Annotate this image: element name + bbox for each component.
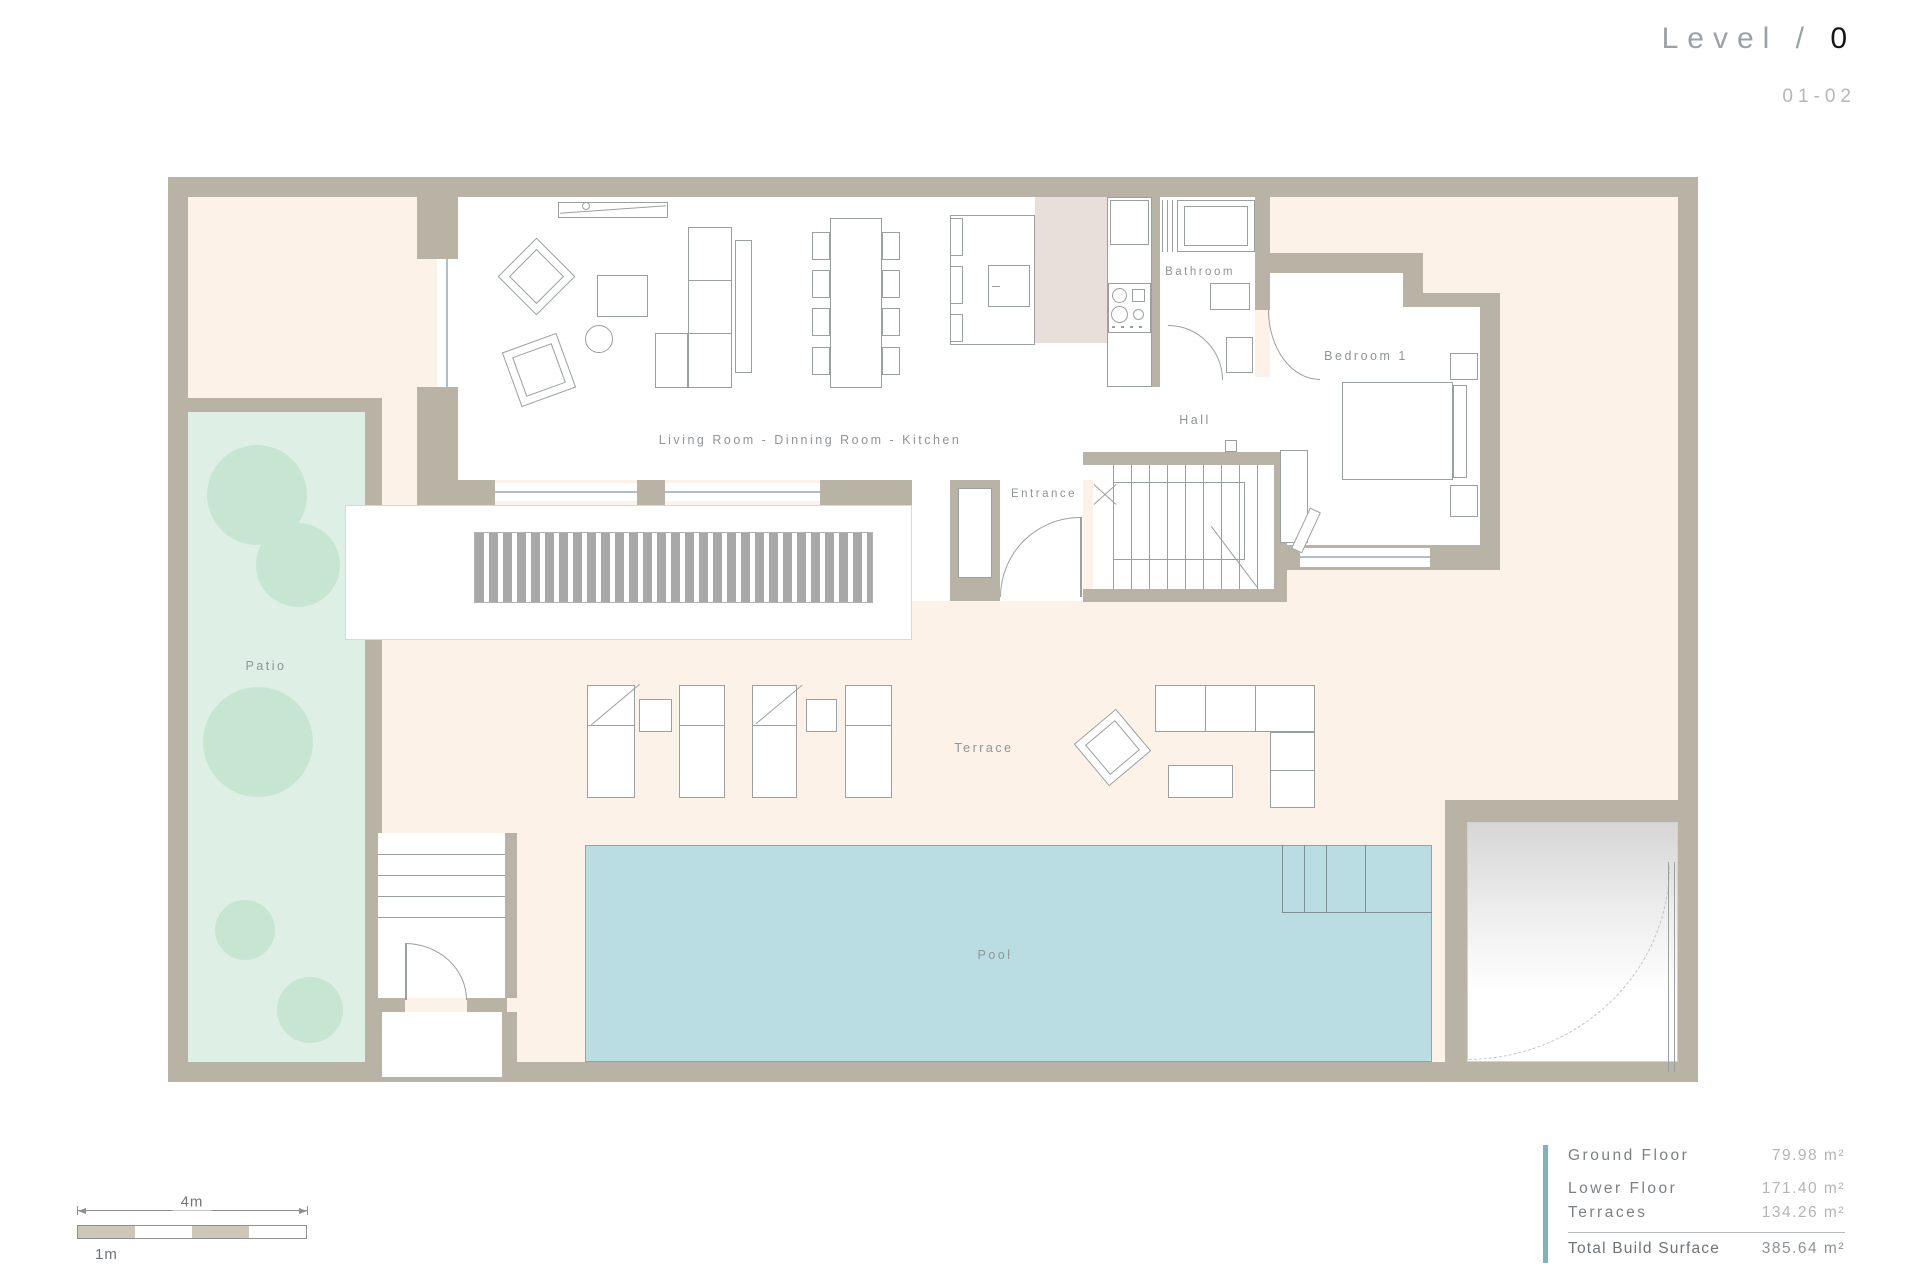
sheet-title: Level / 0 [1662,22,1856,56]
bed-headboard [1453,385,1467,478]
cooktop-burner [1112,288,1127,303]
outdoor-sofa-line [1255,685,1256,732]
pool-step [1326,845,1327,912]
sofa-chaise [655,333,688,388]
sheet-title-level-number: 0 [1830,22,1856,55]
area-table-divider [1568,1232,1845,1233]
pool-step [1365,845,1366,912]
sheet-number: 01-02 [1782,86,1856,108]
tv-knob [582,202,590,210]
bed [1342,382,1453,480]
garage-door-leaf [1674,862,1675,1072]
washbasin [1210,283,1250,310]
window [495,483,637,501]
wall [370,1012,382,1077]
kitchen-sink-mark [992,286,1000,287]
tree [277,977,343,1043]
area-row-label: Ground Floor [1568,1147,1689,1165]
room-label-entrance: Entrance [1011,488,1077,500]
room-label-patio: Patio [246,659,287,673]
dining-chair [812,232,830,260]
scale-bar [77,1225,307,1239]
cooktop-burner [1133,309,1144,320]
nightstand [1450,353,1478,380]
area-table-row: Terraces 134.26 m² [1568,1204,1845,1224]
area-row-value: 134.26 m² [1762,1204,1845,1222]
pool-step-edge [1282,912,1432,913]
pool-step [1304,845,1305,912]
hall-floor [1152,377,1270,461]
room-label-bathroom: Bathroom [1165,266,1235,278]
exterior-stair-treads [378,854,505,924]
kitchen-cabinet [950,314,963,342]
pool-step [1282,845,1283,912]
garage-wall-top [1445,800,1698,822]
louver-deck [474,532,873,603]
door-leaf [1080,517,1082,597]
tree [203,687,313,797]
dining-chair [882,308,900,336]
sofa-seat-line [688,280,732,281]
side-table-round [585,325,613,353]
lounger-fold-line [587,725,635,726]
lounger-fold-line [845,725,892,726]
area-table-accent-bar [1543,1145,1548,1263]
stair-wall-top [1083,452,1287,465]
bathroom-shelf [1162,200,1163,252]
kitchen-cabinet [950,266,963,304]
wall [502,1012,517,1077]
dining-chair [812,347,830,375]
dining-chair [812,308,830,336]
window [665,483,820,501]
cooktop-burner [1111,306,1128,323]
area-row-value: 79.98 m² [1772,1147,1845,1165]
wall [637,480,665,505]
wall [417,480,495,505]
lower-vestibule [382,1012,502,1077]
area-table-row: Ground Floor 79.98 m² [1568,1147,1845,1167]
wall [417,197,458,259]
outdoor-sofa-line [1205,685,1206,732]
stair-newel-post [1225,440,1237,452]
wall [1480,293,1500,570]
scale-arrow-left [78,1208,86,1214]
sofa-console [735,240,752,373]
bathroom-shelf [1172,200,1173,252]
tree [256,523,340,607]
wall [1152,197,1160,387]
sun-lounger [679,685,725,798]
dining-chair [812,270,830,298]
room-label-hall: Hall [1179,413,1211,427]
room-label-terrace: Terrace [954,741,1013,755]
patio-wall-top [188,398,382,412]
wall [1270,253,1413,273]
side-table [639,699,672,732]
scale-total-label: 4m [173,1194,212,1211]
area-row-label: Lower Floor [1568,1180,1677,1198]
wall [417,387,458,480]
garage-wall-left [1445,822,1467,1062]
wall [367,998,405,1012]
lounger-fold-line [679,725,725,726]
outdoor-sofa [1155,685,1315,732]
kitchen-pantry-block [1035,197,1107,343]
wall-niche [958,488,992,578]
sun-lounger [587,685,635,798]
outdoor-sofa-line [1270,770,1315,771]
dining-chair [882,270,900,298]
room-label-pool: Pool [977,948,1012,962]
area-table-total-row: Total Build Surface 385.64 m² [1568,1240,1845,1260]
nightstand [1450,485,1478,517]
exterior-notch [1423,197,1480,293]
sofa-seat-line [688,333,732,334]
stair-guardrail [1113,482,1245,560]
stair-wall-bottom [1083,589,1287,602]
wall [820,480,912,505]
side-table [806,699,837,732]
room-label-living: Living Room - Dinning Room - Kitchen [659,433,962,447]
area-row-label: Terraces [1568,1204,1647,1222]
kitchen-cabinet [950,218,963,256]
dining-chair [882,232,900,260]
outdoor-coffee-table [1168,765,1233,798]
tree [215,900,275,960]
window [437,259,458,387]
scale-arrow-right [299,1208,307,1214]
shower-tray [1184,206,1248,246]
sofa [688,227,732,388]
toilet [1226,337,1253,373]
lounger-fold-line [752,725,797,726]
area-row-value: 171.40 m² [1762,1180,1845,1198]
dining-table [830,218,882,388]
area-total-value: 385.64 m² [1762,1240,1845,1258]
area-table-row: Lower Floor 171.40 m² [1568,1180,1845,1200]
cooktop-knobs [1112,326,1144,328]
sun-lounger [752,685,797,798]
wall [467,998,507,1012]
room-label-bedroom1: Bedroom 1 [1324,349,1408,363]
sun-lounger [845,685,892,798]
oven [1110,200,1149,245]
wall [1255,197,1270,310]
bathroom-shelf [1167,200,1168,252]
garage-door-leaf [1668,862,1669,1072]
area-total-label: Total Build Surface [1568,1240,1720,1258]
scale-unit-label: 1m [95,1246,118,1263]
dining-chair [882,347,900,375]
cooktop-burner [1132,289,1145,302]
window [1300,548,1430,567]
coffee-table [597,275,648,317]
wall [505,833,517,998]
sheet-title-prefix: Level / [1662,22,1813,55]
floor-plan-sheet: Level / 0 01-02 [0,0,1920,1280]
scale-tick [307,1206,308,1215]
